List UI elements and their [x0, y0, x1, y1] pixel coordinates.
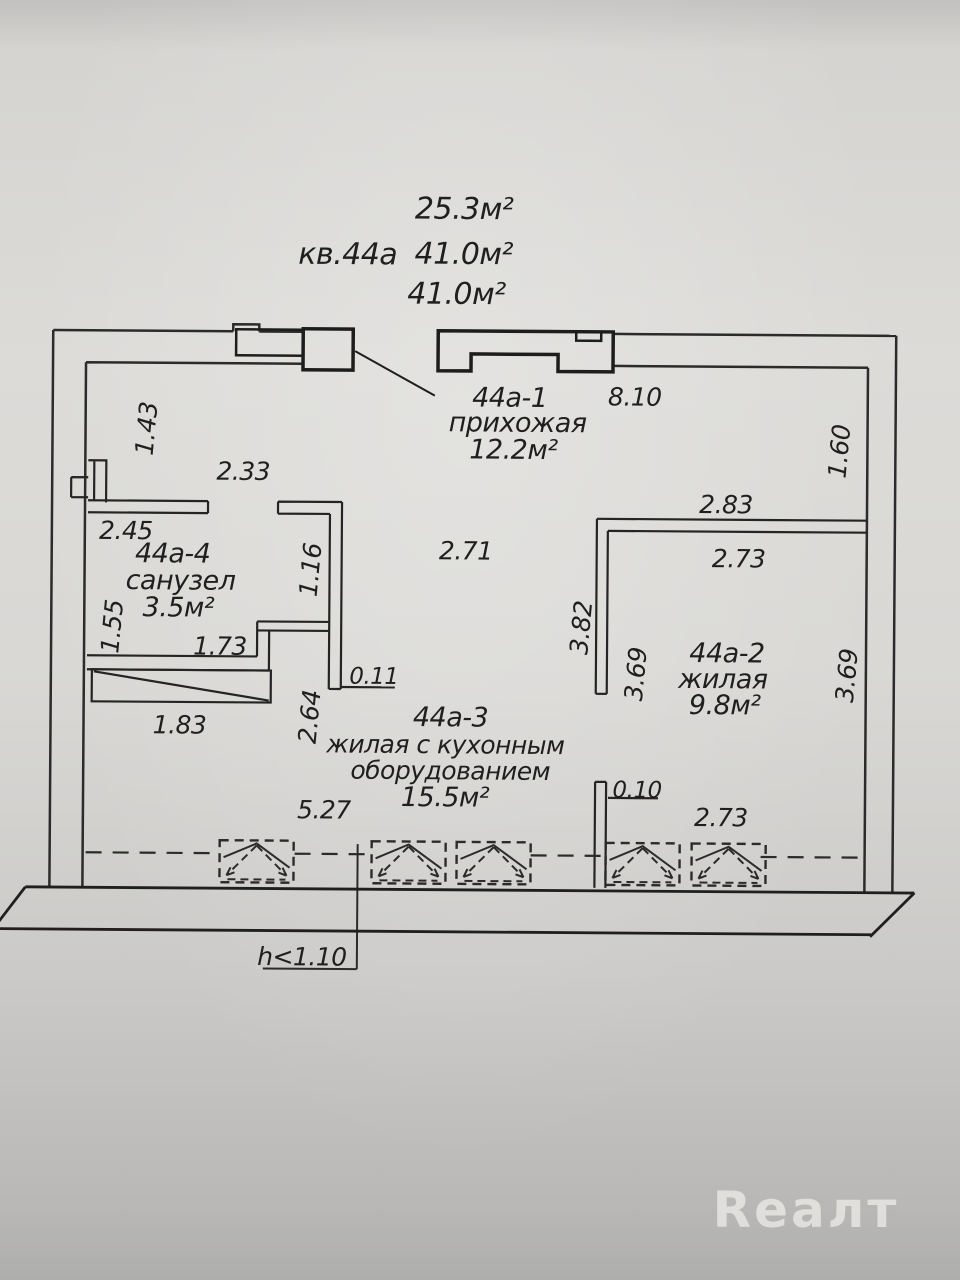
room-living2-area: 9.8м²	[689, 692, 761, 719]
floor-plan: 25.3м² кв.44а 41.0м² 41.0м² 44а-1 прихож…	[0, 0, 960, 1280]
room-hallway-area: 12.2м²	[469, 436, 557, 464]
total-area-note-3: 41.0м²	[407, 279, 506, 310]
dim-bath-left: 1.55	[97, 599, 127, 655]
dim-kitchen-width: 5.27	[297, 797, 351, 822]
room-bathroom-id: 44а-4	[135, 540, 211, 568]
room-kitchen-area: 15.5м²	[401, 784, 489, 812]
dim-room2-right: 3.69	[832, 648, 862, 704]
realt-watermark: Reaлт	[713, 1181, 900, 1239]
dim-bath-right: 1.16	[296, 542, 326, 598]
dim-room2-left-in: 3.69	[621, 646, 651, 702]
dim-bath-bottom: 1.73	[193, 634, 247, 659]
room-bathroom-area: 3.5м²	[142, 594, 214, 621]
balcony-slab	[0, 887, 914, 937]
room-bathroom-name: санузел	[126, 567, 236, 595]
dim-hall-left-v: 1.43	[132, 401, 162, 457]
dim-niche-width: 1.83	[153, 712, 207, 737]
dim-right-upper: 1.60	[824, 424, 854, 480]
room-kitchen-id: 44а-3	[413, 704, 489, 732]
dim-hall-width: 2.71	[439, 538, 493, 563]
dim-room2-top-out: 2.83	[699, 492, 753, 517]
dim-room2-top-in: 2.73	[712, 546, 766, 571]
dim-top-total: 8.10	[608, 384, 662, 409]
niche	[92, 669, 271, 702]
apartment-number: кв.44а	[298, 240, 397, 271]
total-area-note-1: 25.3м²	[415, 195, 514, 226]
room-hallway-name: прихожая	[449, 409, 587, 437]
parapet-height-note: h<1.10	[257, 944, 347, 970]
dim-room2-left-out: 3.82	[566, 600, 596, 656]
dim-room2-bottom: 2.73	[694, 805, 748, 830]
total-area-note-2: 41.0м²	[414, 240, 513, 271]
dim-kitchen-left: 2.64	[295, 689, 325, 745]
room-kitchen-name-line2: оборудованием	[350, 758, 550, 784]
dim-wall-stub: 0.11	[349, 666, 398, 689]
dim-hall-top-w: 2.33	[216, 459, 270, 484]
room-kitchen-name-line1: жилая с кухонным	[326, 731, 564, 758]
dim-room2-stub: 0.10	[612, 779, 661, 802]
window-band	[85, 839, 865, 972]
floor-plan-photo: 25.3м² кв.44а 41.0м² 41.0м² 44а-1 прихож…	[0, 0, 960, 1280]
